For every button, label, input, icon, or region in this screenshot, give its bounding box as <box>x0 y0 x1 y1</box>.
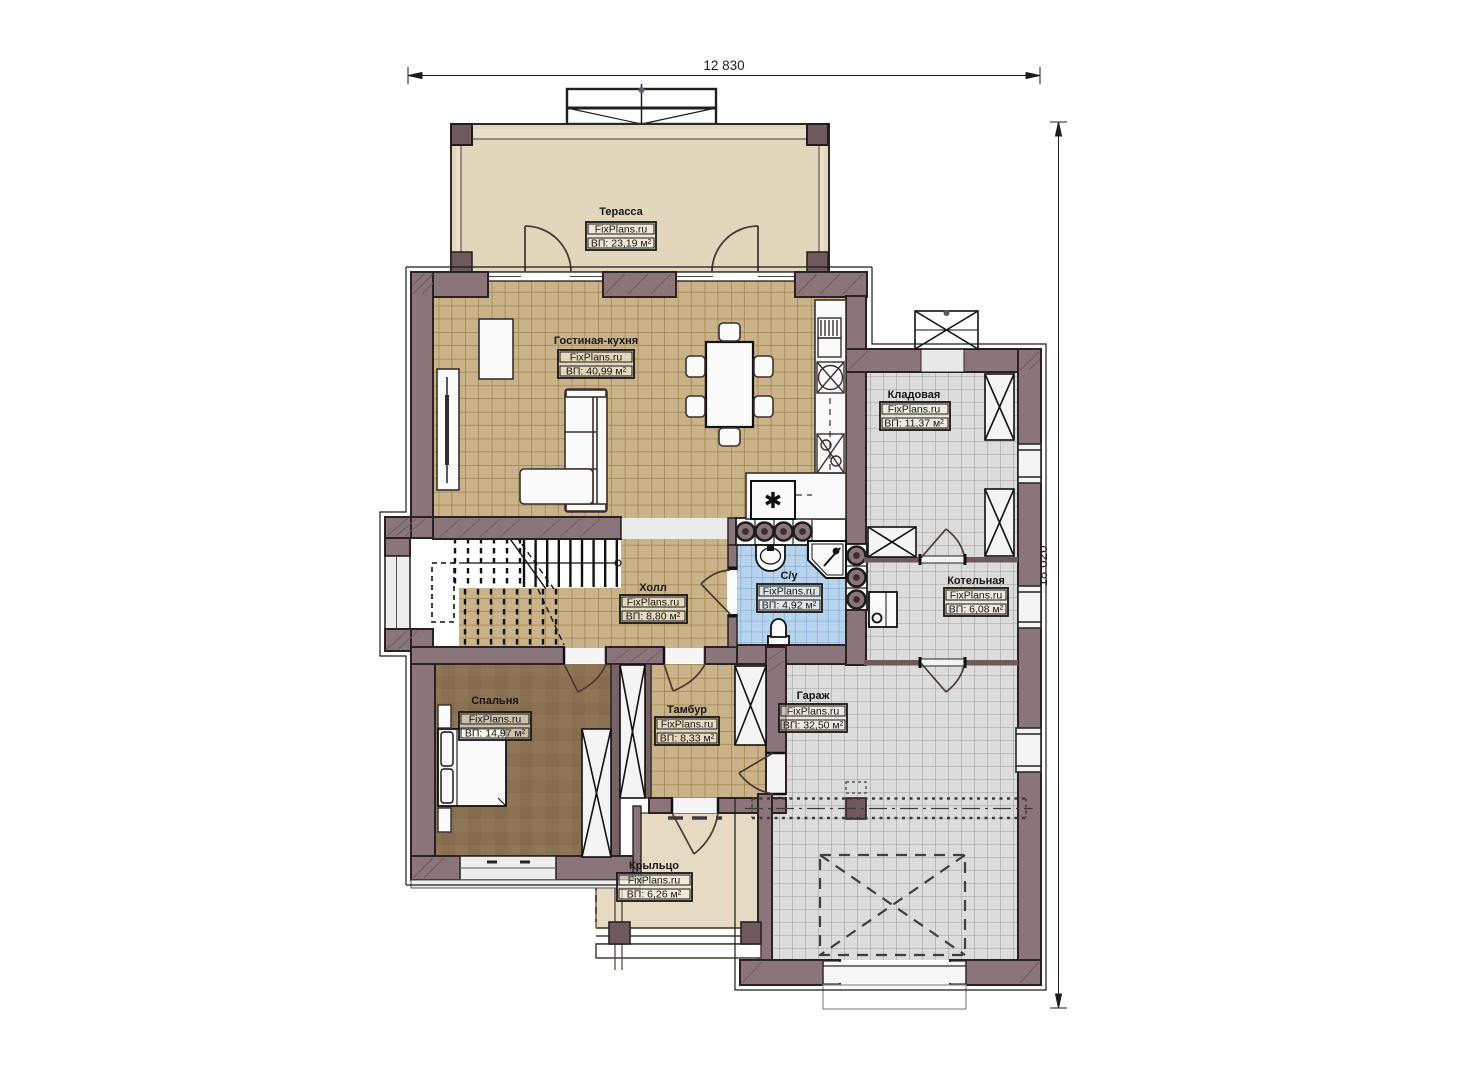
svg-text:ВП: 14,97 м²: ВП: 14,97 м² <box>465 728 526 740</box>
svg-text:ВП: 8,33 м²: ВП: 8,33 м² <box>660 733 715 745</box>
svg-text:FixPlans.ru: FixPlans.ru <box>627 597 680 609</box>
svg-text:Терасса: Терасса <box>599 206 643 218</box>
svg-text:FixPlans.ru: FixPlans.ru <box>950 590 1003 602</box>
svg-text:ВП: 11,37 м²: ВП: 11,37 м² <box>884 418 944 430</box>
svg-text:С/у: С/у <box>780 570 798 582</box>
svg-text:ВП: 23,19 м²: ВП: 23,19 м² <box>591 238 652 250</box>
svg-text:Котельная: Котельная <box>947 575 1005 587</box>
svg-text:✱: ✱ <box>764 488 782 513</box>
svg-text:FixPlans.ru: FixPlans.ru <box>628 875 681 887</box>
svg-text:Кладовая: Кладовая <box>888 389 941 401</box>
svg-text:ВП: 4,92 м²: ВП: 4,92 м² <box>762 600 817 612</box>
svg-text:FixPlans.ru: FixPlans.ru <box>595 224 648 236</box>
svg-text:Тамбур: Тамбур <box>667 704 707 716</box>
svg-text:FixPlans.ru: FixPlans.ru <box>469 714 522 726</box>
svg-text:ВП: 8,80 м²: ВП: 8,80 м² <box>626 611 681 623</box>
svg-text:Гостиная-кухня: Гостиная-кухня <box>554 335 638 347</box>
svg-text:Гараж: Гараж <box>797 690 830 702</box>
svg-text:FixPlans.ru: FixPlans.ru <box>763 586 816 598</box>
svg-text:ВП: 40,99 м²: ВП: 40,99 м² <box>566 366 627 378</box>
svg-text:FixPlans.ru: FixPlans.ru <box>787 706 840 718</box>
svg-text:FixPlans.ru: FixPlans.ru <box>570 352 623 364</box>
svg-text:ВП: 6,08 м²: ВП: 6,08 м² <box>949 604 1004 616</box>
svg-text:Холл: Холл <box>639 582 667 594</box>
svg-text:ВП: 32,50 м²: ВП: 32,50 м² <box>783 720 844 732</box>
svg-text:Спальня: Спальня <box>471 695 519 707</box>
svg-text:12 830: 12 830 <box>703 58 744 73</box>
svg-text:Крыльцо: Крыльцо <box>629 860 679 872</box>
svg-text:ВП: 6,26 м²: ВП: 6,26 м² <box>627 889 682 901</box>
svg-text:FixPlans.ru: FixPlans.ru <box>888 404 941 416</box>
svg-text:FixPlans.ru: FixPlans.ru <box>661 719 714 731</box>
